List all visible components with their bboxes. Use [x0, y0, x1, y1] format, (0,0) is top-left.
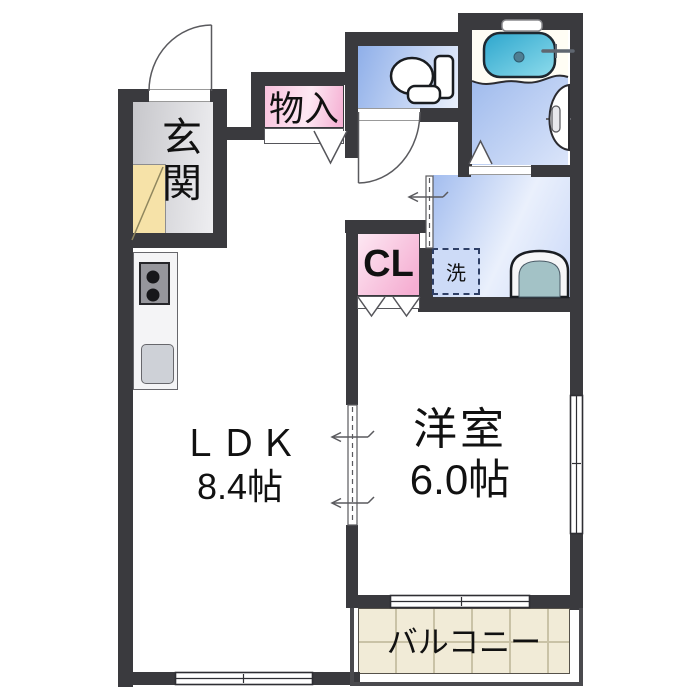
wall [570, 13, 583, 397]
wall [531, 165, 583, 177]
wall [418, 297, 583, 312]
wall [346, 595, 391, 608]
wall [420, 108, 462, 122]
floor-plan-image: 玄関 物入 CL 洗 ＬＤＫ 8.4帖 洋室 6.0帖 バルコニー [0, 0, 700, 700]
wall [118, 89, 133, 687]
wall [458, 13, 583, 30]
closet-label: CL [357, 233, 420, 296]
toilet-door-opening [358, 108, 420, 121]
toilet-room-floor [358, 46, 458, 108]
balcony-border [350, 682, 583, 686]
kitchen-sink-icon [141, 344, 174, 384]
toilet-door-swing [359, 112, 421, 183]
balcony-label: バルコニー [358, 620, 570, 658]
bath-door-opening [469, 166, 531, 175]
wall [118, 672, 176, 685]
wall [345, 32, 460, 46]
wall [131, 233, 227, 248]
ldk-size-label: 8.4帖 [140, 463, 340, 505]
balcony-border [579, 608, 583, 686]
bathroom-floor [472, 30, 568, 165]
wall [213, 95, 227, 248]
wall [345, 32, 358, 158]
western-room-size-label: 6.0帖 [370, 452, 550, 500]
wall [529, 595, 583, 608]
ldk-label: ＬＤＫ [140, 419, 340, 461]
washer-label: 洗 [432, 248, 480, 295]
closet-door-strip [357, 296, 420, 309]
stove-icon [139, 262, 170, 305]
entrance-door-swing [149, 25, 212, 91]
storage-label: 物入 [264, 85, 344, 128]
wall [118, 89, 149, 102]
balcony-border [350, 608, 354, 686]
wall [458, 13, 472, 175]
genkan-label: 玄関 [152, 102, 204, 222]
western-room-label: 洋室 [370, 400, 550, 450]
entrance-door-opening [149, 89, 210, 102]
